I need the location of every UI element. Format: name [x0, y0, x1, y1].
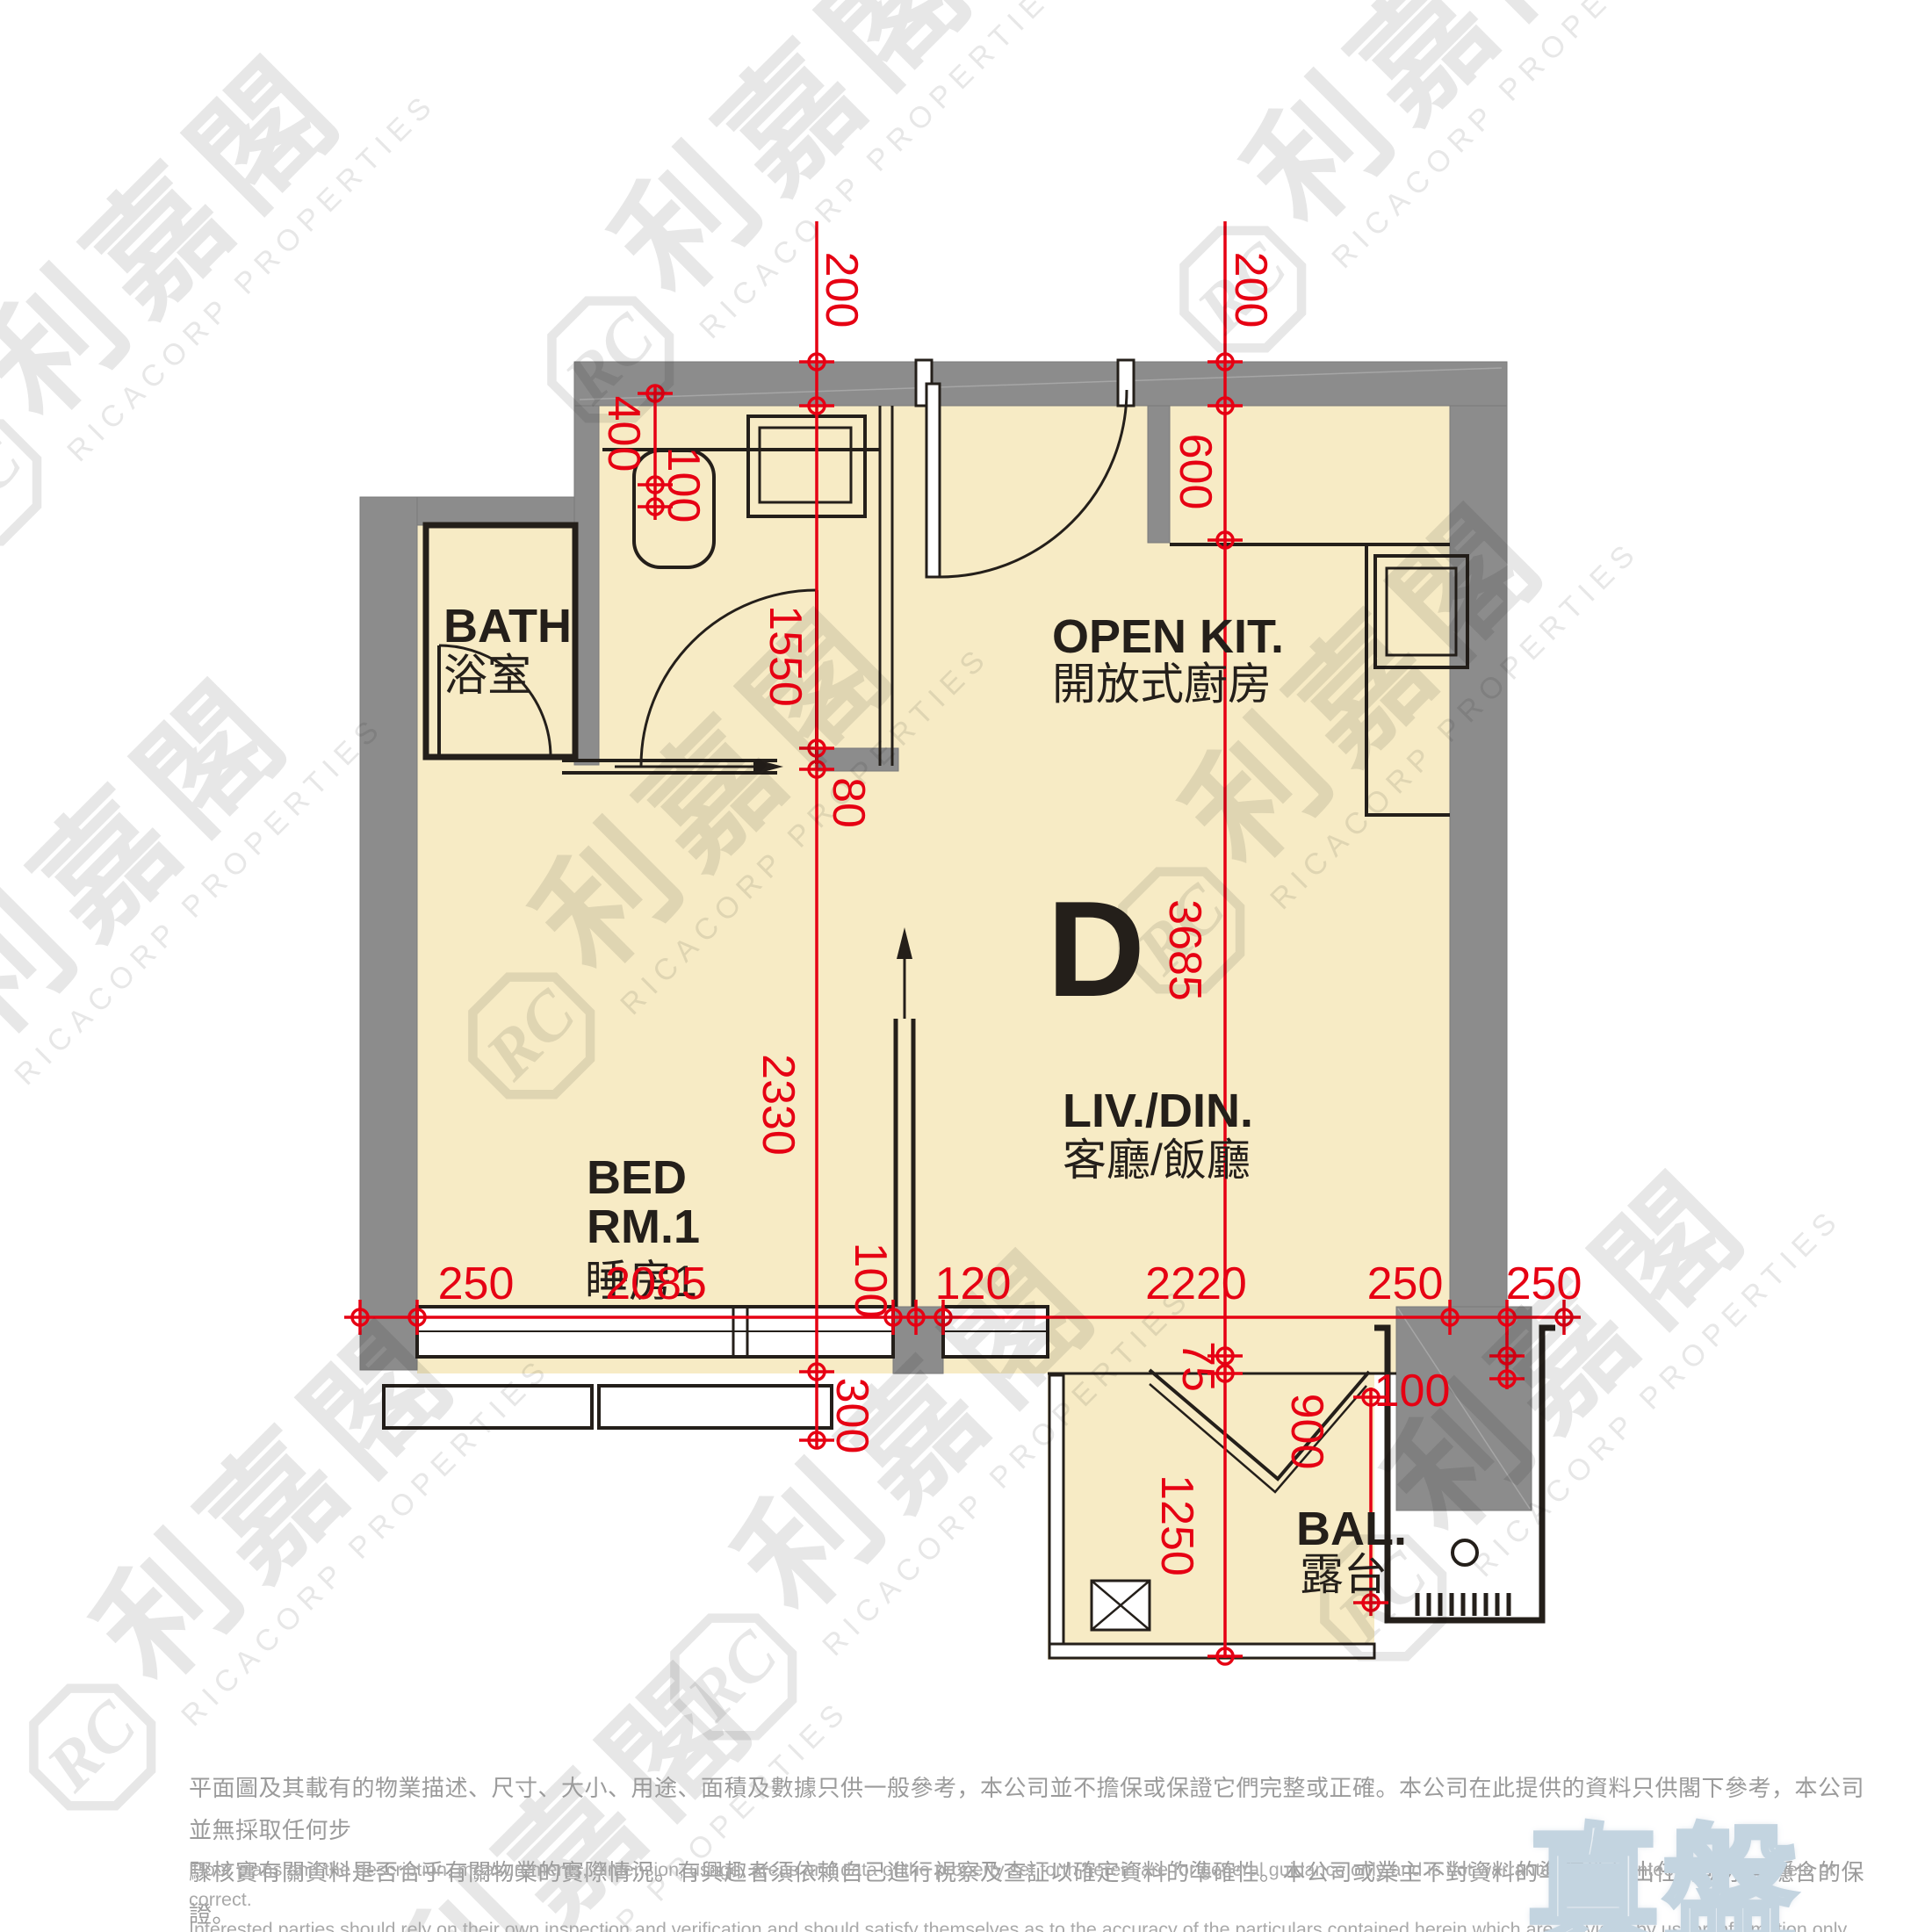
bath-label-zh: 浴室 [443, 653, 531, 698]
bath-label-en: BATH [443, 602, 572, 651]
platform-drain [1453, 1540, 1477, 1565]
dim-200-right: 200 [1224, 252, 1277, 328]
dim-250-right-a: 250 [1367, 1258, 1444, 1310]
dim-80: 80 [822, 777, 875, 828]
louvre-grille [1417, 1593, 1509, 1616]
dim-250-left: 250 [438, 1258, 515, 1310]
dim-120: 120 [935, 1258, 1012, 1310]
balcony-label-zh: 露台 [1300, 1553, 1388, 1597]
dim-100-fixture: 100 [657, 447, 710, 523]
dim-600: 600 [1169, 434, 1222, 510]
window-ledge [599, 1386, 832, 1428]
dim-200-left: 200 [815, 252, 868, 328]
unit-label: D [1047, 880, 1145, 1019]
dim-3685: 3685 [1158, 899, 1211, 1001]
balcony-label-en: BAL. [1296, 1505, 1407, 1554]
property-source-stamp: 真盤源 [1526, 1781, 1932, 1932]
living-label-zh: 客廳/飯廳 [1063, 1138, 1251, 1183]
window-ledge [384, 1386, 592, 1428]
dim-2085: 2085 [605, 1258, 707, 1310]
balcony-wall [1049, 1375, 1063, 1656]
floorplan-page: RC 利嘉閣RICACORP PROPERTIES RC 利嘉閣RICACORP… [0, 0, 1932, 1932]
dim-1250: 1250 [1150, 1474, 1203, 1576]
kitchen-label-en: OPEN KIT. [1052, 613, 1284, 661]
dim-100-partition: 100 [844, 1243, 897, 1319]
dim-75: 75 [1171, 1341, 1224, 1392]
dim-2330: 2330 [752, 1054, 804, 1156]
entrance-door-leaf [926, 384, 940, 577]
dim-300: 300 [825, 1378, 878, 1454]
dim-250-right-b: 250 [1506, 1258, 1582, 1310]
living-label-en: LIV./DIN. [1063, 1087, 1253, 1135]
dim-400: 400 [597, 396, 650, 472]
bedroom-label-en: BED [587, 1154, 687, 1202]
dim-900: 900 [1280, 1394, 1333, 1470]
bedroom-label-en: RM.1 [587, 1203, 700, 1251]
dim-1550: 1550 [759, 605, 811, 707]
dim-2220: 2220 [1145, 1258, 1247, 1310]
kitchen-label-zh: 開放式廚房 [1052, 662, 1272, 707]
floor-fill [417, 406, 1450, 1660]
dim-100-right: 100 [1374, 1365, 1451, 1417]
floor-plan-drawing [0, 0, 1932, 1932]
